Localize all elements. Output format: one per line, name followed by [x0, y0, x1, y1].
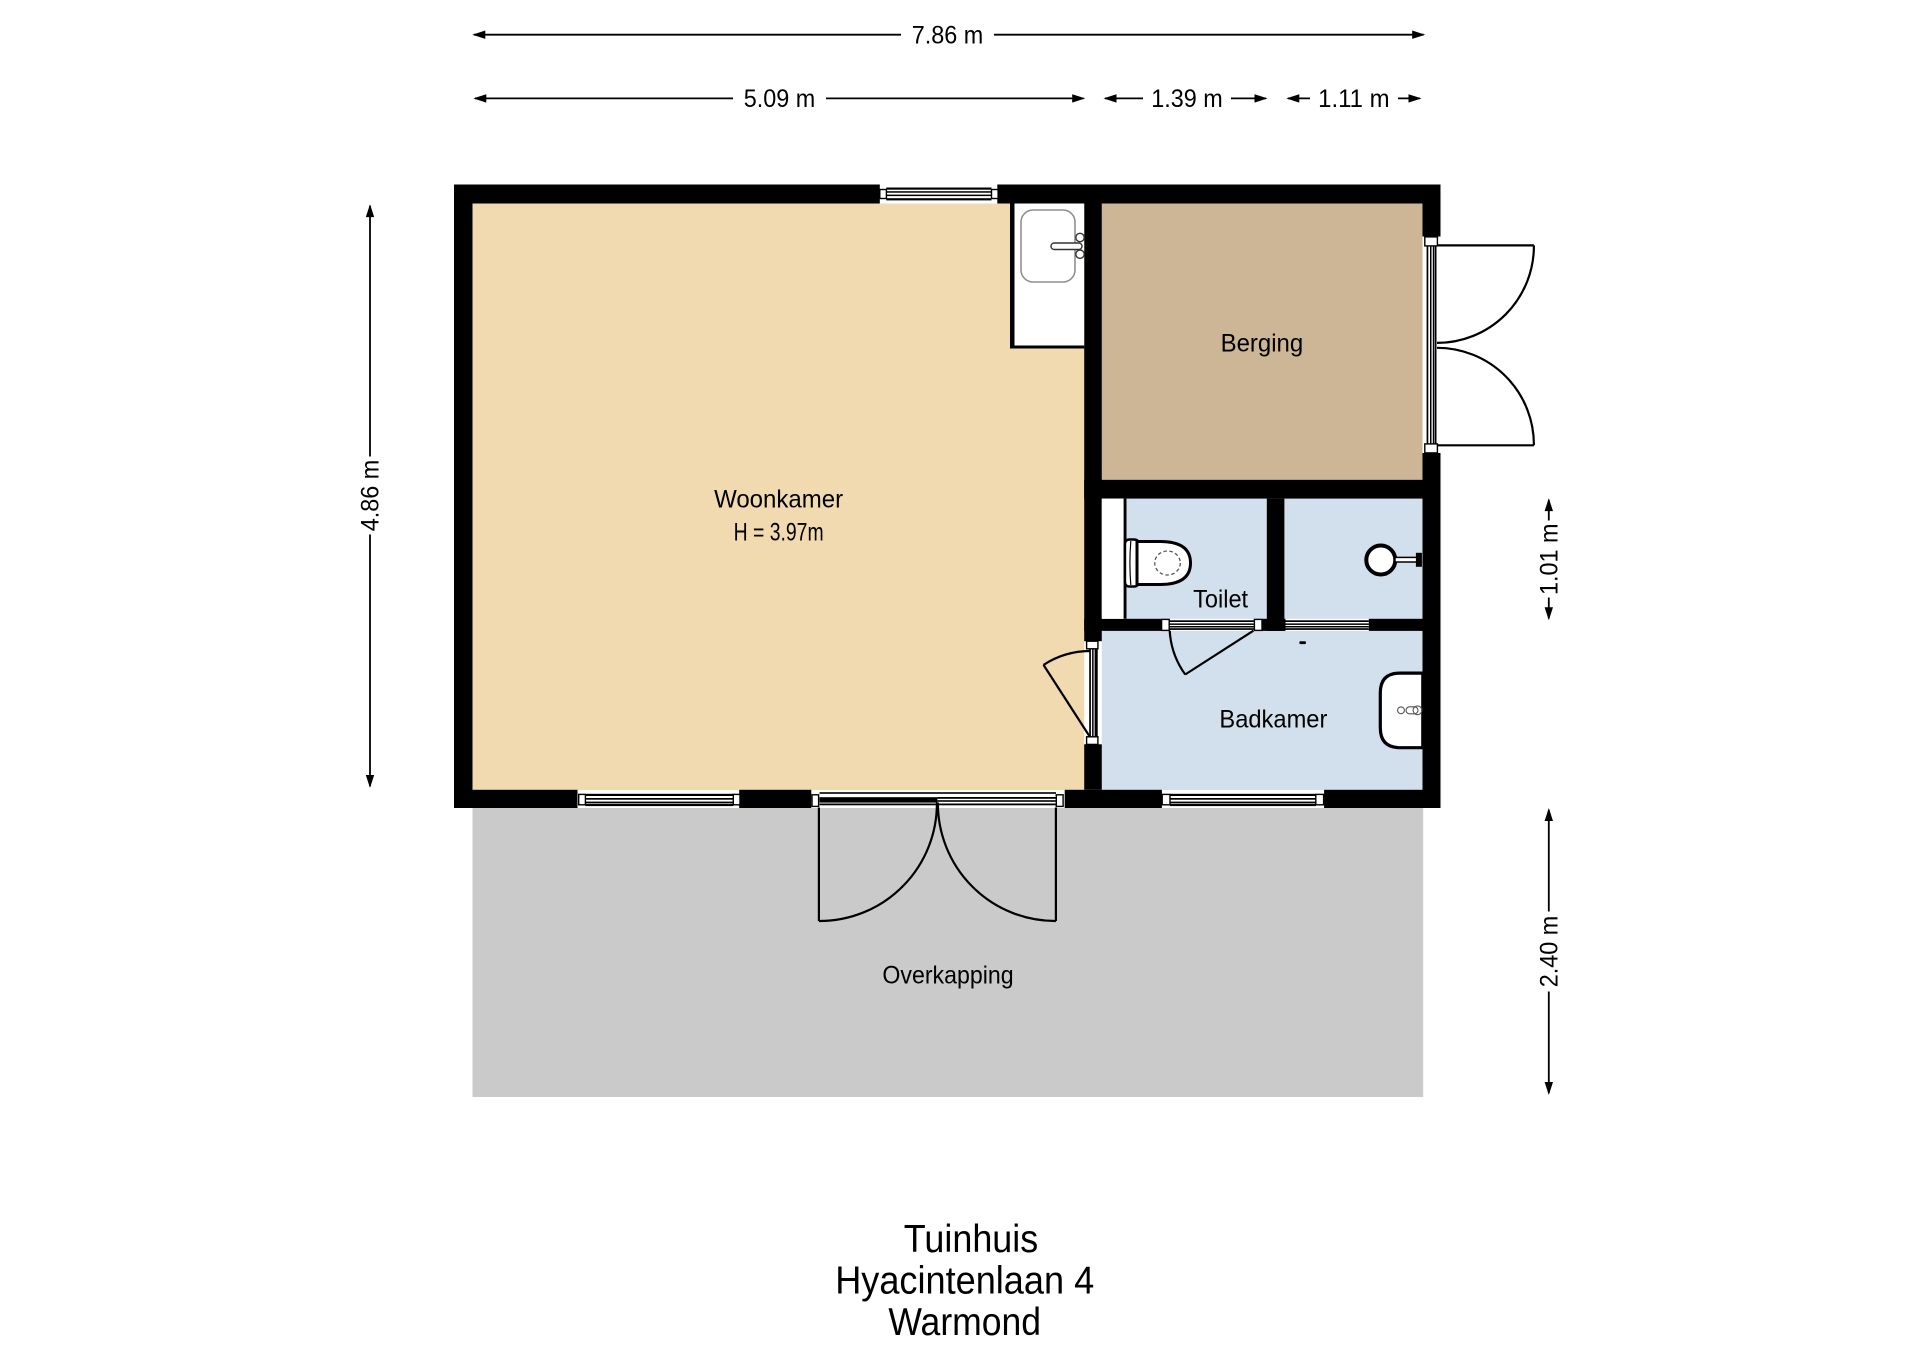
svg-text:Tuinhuis: Tuinhuis: [904, 1218, 1039, 1261]
svg-text:Hyacintenlaan 4: Hyacintenlaan 4: [835, 1260, 1094, 1303]
svg-text:1.39 m: 1.39 m: [1151, 85, 1223, 113]
svg-text:5.09 m: 5.09 m: [744, 85, 816, 113]
svg-text:1.11 m: 1.11 m: [1318, 85, 1390, 113]
svg-text:1.01 m: 1.01 m: [1536, 523, 1564, 595]
svg-text:Berging: Berging: [1221, 329, 1304, 357]
svg-text:2.40 m: 2.40 m: [1536, 916, 1564, 988]
svg-text:Warmond: Warmond: [888, 1301, 1041, 1344]
svg-text:H = 3.97m: H = 3.97m: [734, 519, 824, 547]
svg-text:Overkapping: Overkapping: [882, 962, 1013, 990]
svg-text:4.86 m: 4.86 m: [357, 460, 385, 532]
svg-text:Toilet: Toilet: [1193, 586, 1248, 614]
svg-text:Badkamer: Badkamer: [1219, 706, 1327, 734]
svg-text:7.86 m: 7.86 m: [912, 21, 984, 49]
svg-text:Woonkamer: Woonkamer: [714, 485, 843, 513]
